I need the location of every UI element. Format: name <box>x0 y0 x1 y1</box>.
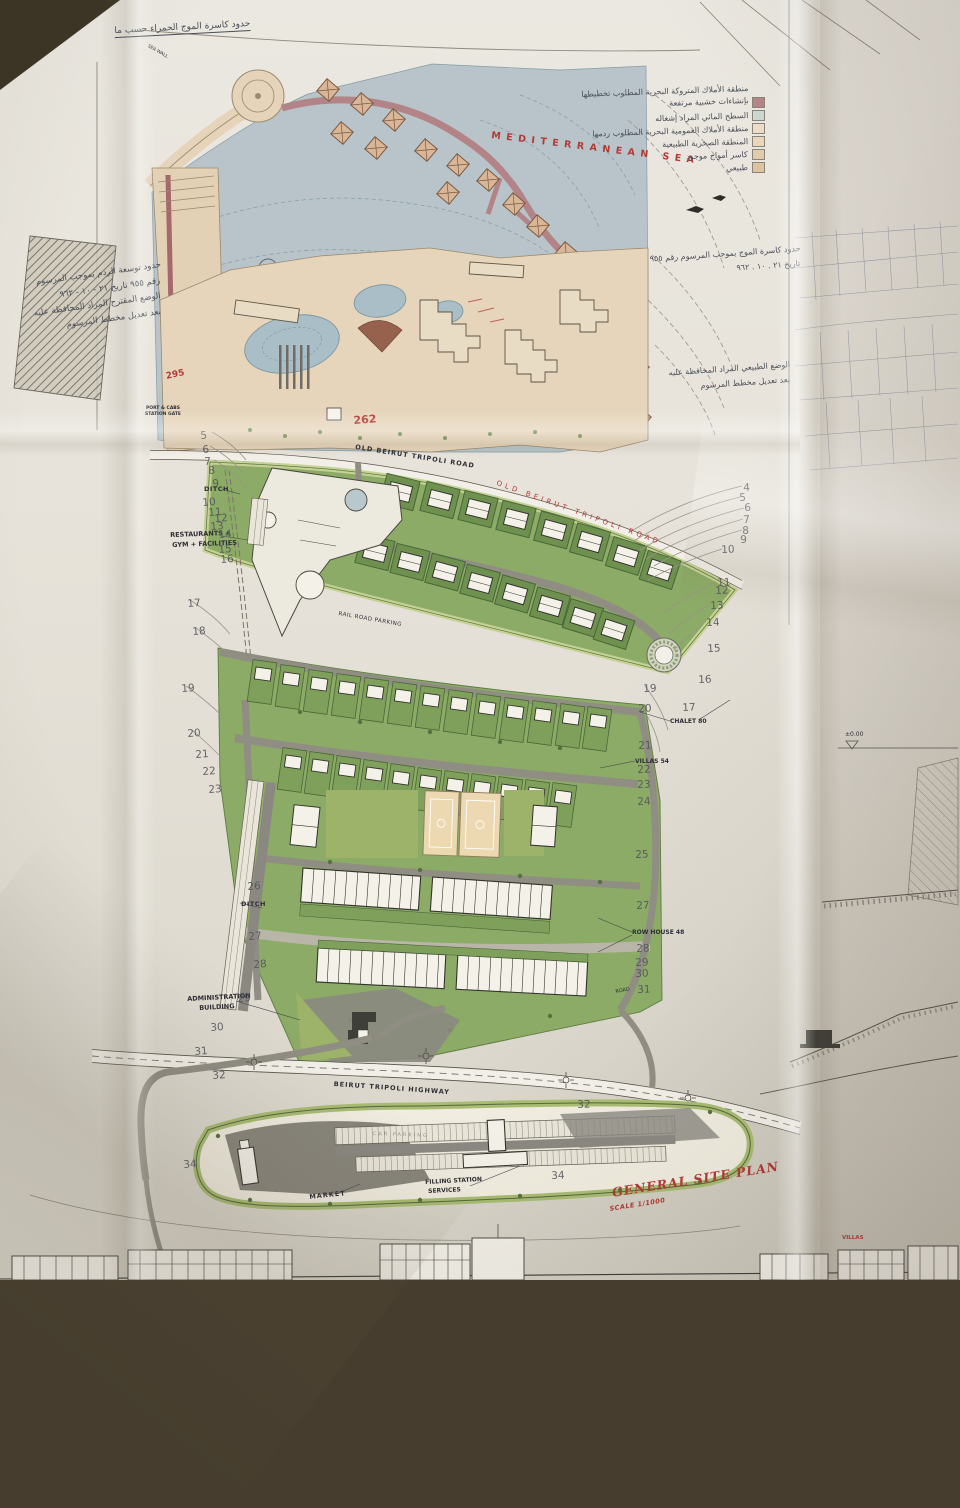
ruin-marks <box>686 195 726 213</box>
section-fragments <box>760 741 958 1094</box>
photo-of-site-plan: { "title_block": { "title": "GENERAL SIT… <box>0 0 960 1280</box>
resort-complex <box>160 248 648 452</box>
site-plan-drawing <box>0 0 960 1280</box>
cadastral-parcels <box>795 222 958 470</box>
bottom-elevations <box>0 1224 958 1280</box>
market-zone <box>196 1103 750 1207</box>
